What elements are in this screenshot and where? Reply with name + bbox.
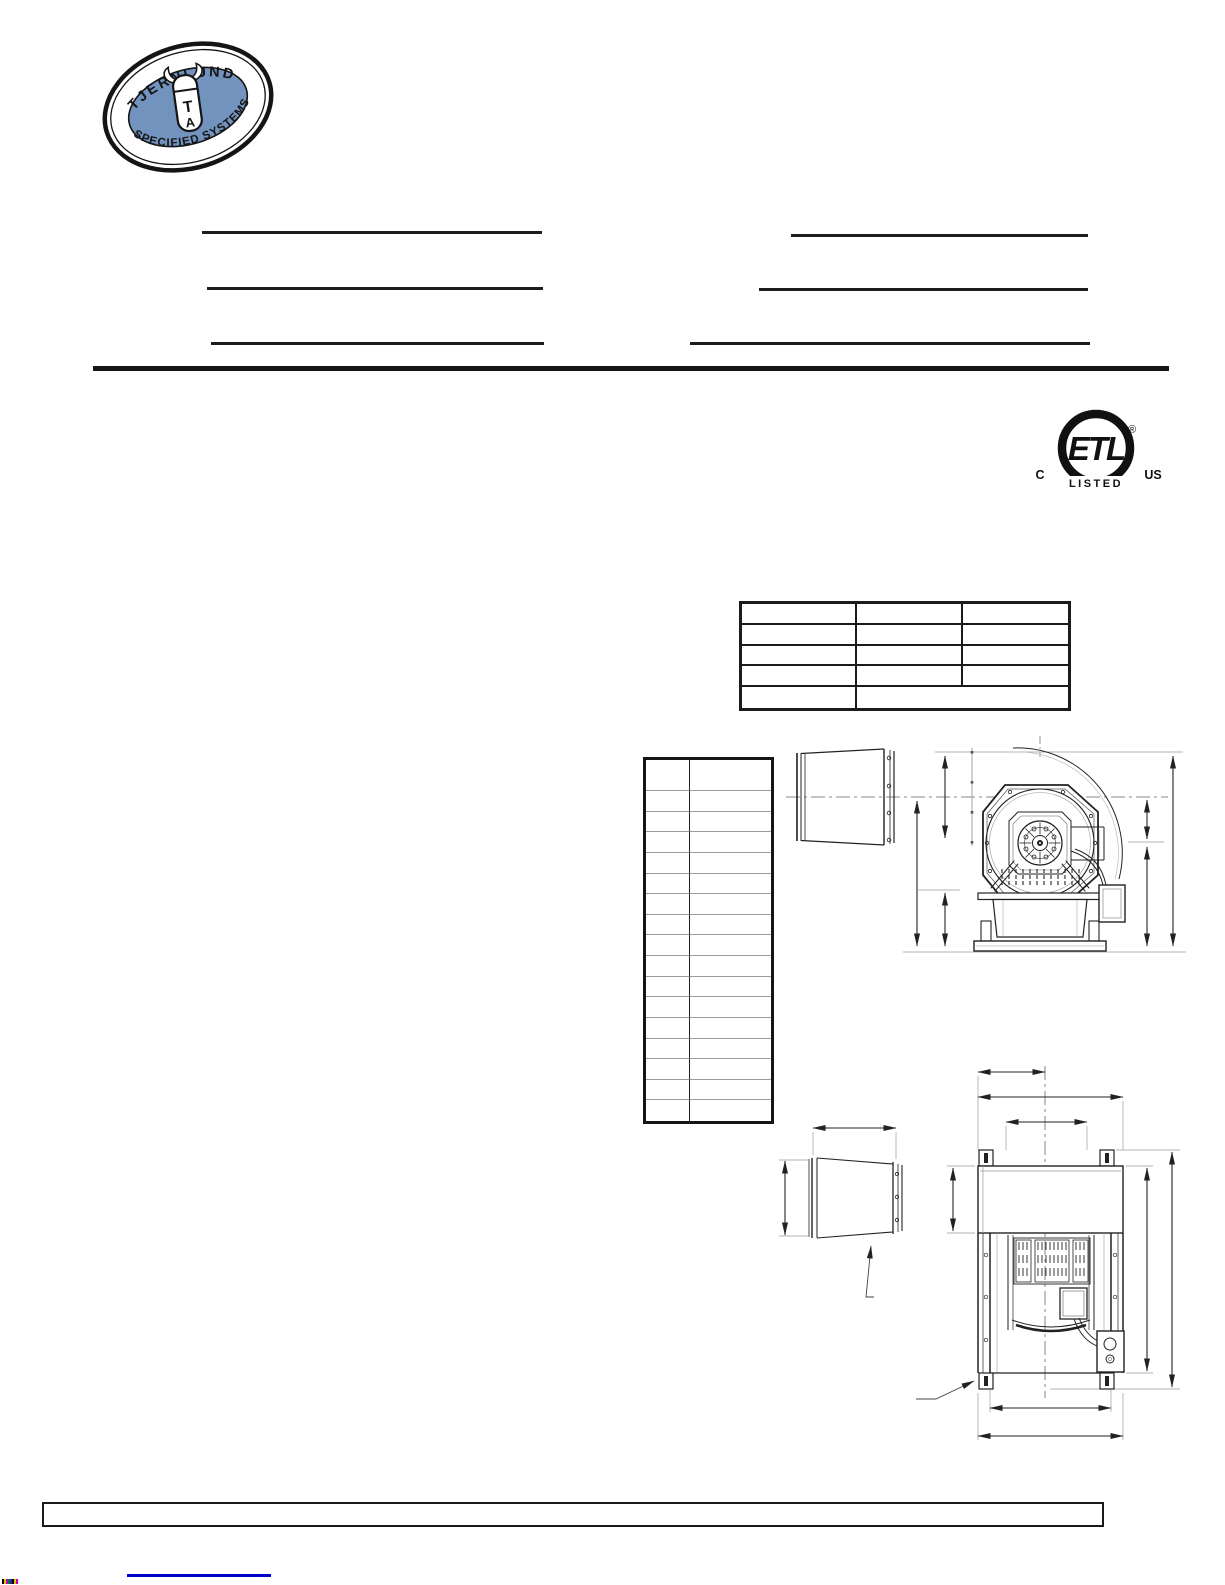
cone-top-view [809,1158,902,1238]
dimension-table-cell [646,1039,690,1060]
dimension-table-left [643,757,774,1124]
form-line-right-1 [791,234,1088,237]
footer-box [42,1502,1104,1527]
leader-lines [866,1246,974,1399]
spec-table-cell [742,687,857,708]
form-line-right-2 [759,288,1088,291]
dimension-table-cell [646,791,690,812]
spec-sheet-page: TJERNLUND SPECIFIED SYSTEMS T A ETL ® C [0,0,1225,1585]
blower-front-view [974,748,1125,951]
dimension-table-cell [690,791,771,812]
dimension-table-cell [646,935,690,956]
dimension-table-cell [646,1080,690,1101]
tjernlund-logo: TJERNLUND SPECIFIED SYSTEMS T A [95,30,285,188]
dimension-table-cell [690,874,771,895]
dimension-table-cell [646,760,690,791]
dimension-table-cell [646,1018,690,1039]
spec-table-cell [857,687,1068,708]
footer-link-underline[interactable] [127,1574,271,1577]
etl-listed-banner: LISTED [1069,478,1123,490]
form-line-left-1 [202,231,542,234]
etl-listed-mark: ETL ® C US LISTED [1030,404,1165,504]
dimension-table-cell [646,997,690,1018]
etl-registered-symbol: ® [1128,424,1136,436]
dimension-table-cell [690,812,771,833]
centerlines [786,736,1168,797]
front-view-drawing [780,733,1190,965]
spec-table-cell [742,625,857,646]
dimension-table-cell [646,874,690,895]
pedestal-base [974,893,1106,951]
electrical-box [1097,1331,1124,1372]
form-line-left-2 [207,287,543,290]
spec-table-cell [857,646,963,667]
dimension-table-cell [690,760,771,791]
dimension-table-cell [646,1059,690,1080]
dimension-table-cell [690,935,771,956]
dimension-table-cell [646,894,690,915]
dimension-table-cell [646,915,690,936]
dimension-table-cell [646,956,690,977]
spec-table-cell [963,625,1068,646]
dimension-table-cell [646,812,690,833]
etl-us-mark: US [1144,468,1161,482]
dimension-table-cell [690,977,771,998]
dimension-table-cell [690,1018,771,1039]
spec-table-cell [857,625,963,646]
dimension-table-cell [646,1100,690,1121]
etl-letters: ETL [1068,430,1125,467]
spec-table-cell [963,646,1068,667]
spec-table-cell [742,666,857,687]
spec-table-cell [742,646,857,667]
dimension-table-cell [646,977,690,998]
spec-table-cell [963,666,1068,687]
form-line-right-3 [690,342,1090,345]
dimension-table-cell [646,853,690,874]
dimension-table-cell [646,832,690,853]
dimension-table-cell [690,832,771,853]
dimension-table-cell [690,915,771,936]
spec-table-cell [742,604,857,625]
spec-table-cell [857,666,963,687]
header-divider-rule [93,366,1169,371]
motor-vent-slots [1019,1242,1084,1276]
dimension-table-cell [690,1039,771,1060]
dimension-table-cell [690,894,771,915]
scroll-housing-top [978,1166,1123,1233]
top-view-drawing [758,1060,1190,1460]
form-line-left-3 [211,342,544,345]
dimension-table-cell [690,997,771,1018]
junction-box-top [1060,1288,1087,1319]
spec-table-top [739,601,1071,711]
blower-top-view [978,1150,1124,1389]
dimension-table-cell [690,956,771,977]
artifact-mark [2,1579,18,1584]
spec-table-cell [857,604,963,625]
dimension-table-cell [690,853,771,874]
spec-table-cell [963,604,1068,625]
etl-c-mark: C [1035,468,1044,482]
